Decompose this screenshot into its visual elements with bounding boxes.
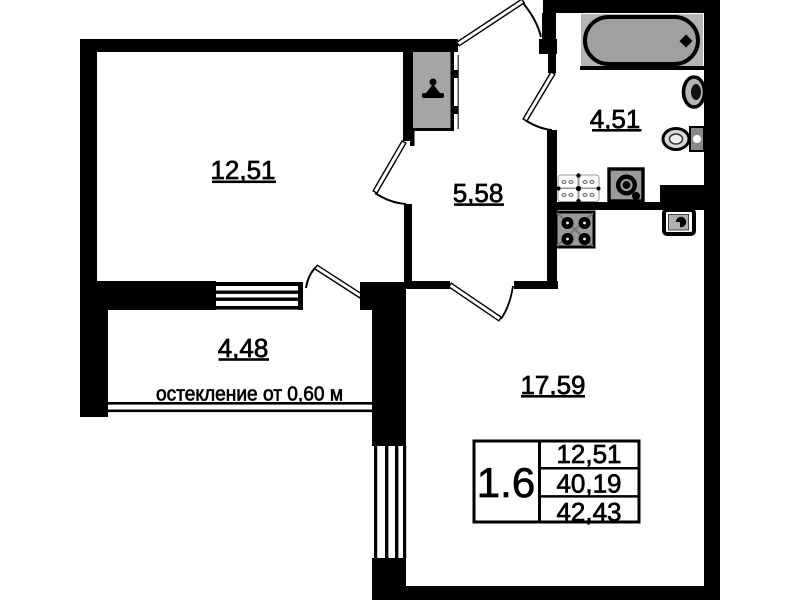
svg-text:40,19: 40,19 <box>556 469 621 499</box>
svg-text:42,43: 42,43 <box>556 497 621 527</box>
svg-text:1.6: 1.6 <box>477 459 535 506</box>
svg-text:12,51: 12,51 <box>556 439 621 469</box>
